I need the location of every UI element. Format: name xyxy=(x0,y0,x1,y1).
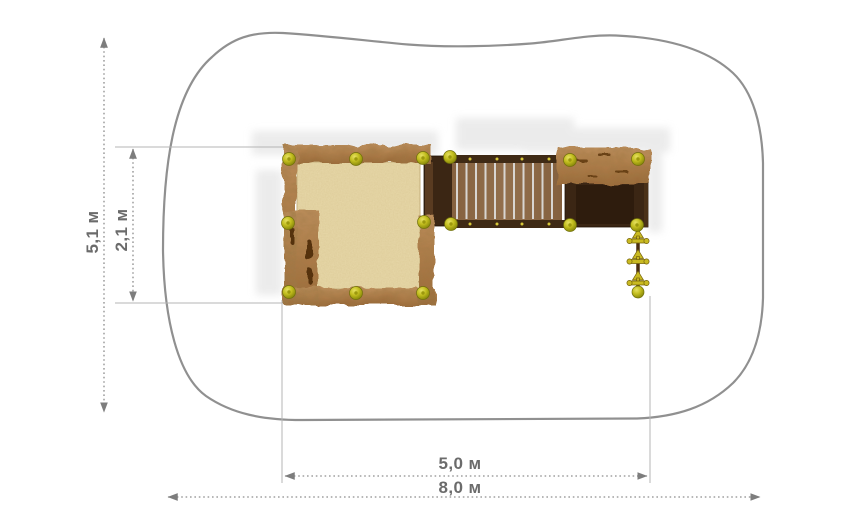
dim-label-structure-width: 5,0 м xyxy=(439,454,482,474)
bridge xyxy=(452,155,565,228)
dim-label-total-height: 5,1 м xyxy=(83,211,103,254)
plan-canvas: 5,1 м 2,1 м 5,0 м 8,0 м xyxy=(0,0,850,530)
dim-label-total-width: 8,0 м xyxy=(439,478,482,498)
dim-label-inner-height: 2,1 м xyxy=(112,209,132,252)
climbing-hold-icon xyxy=(627,229,649,286)
plan-drawing xyxy=(0,0,850,530)
